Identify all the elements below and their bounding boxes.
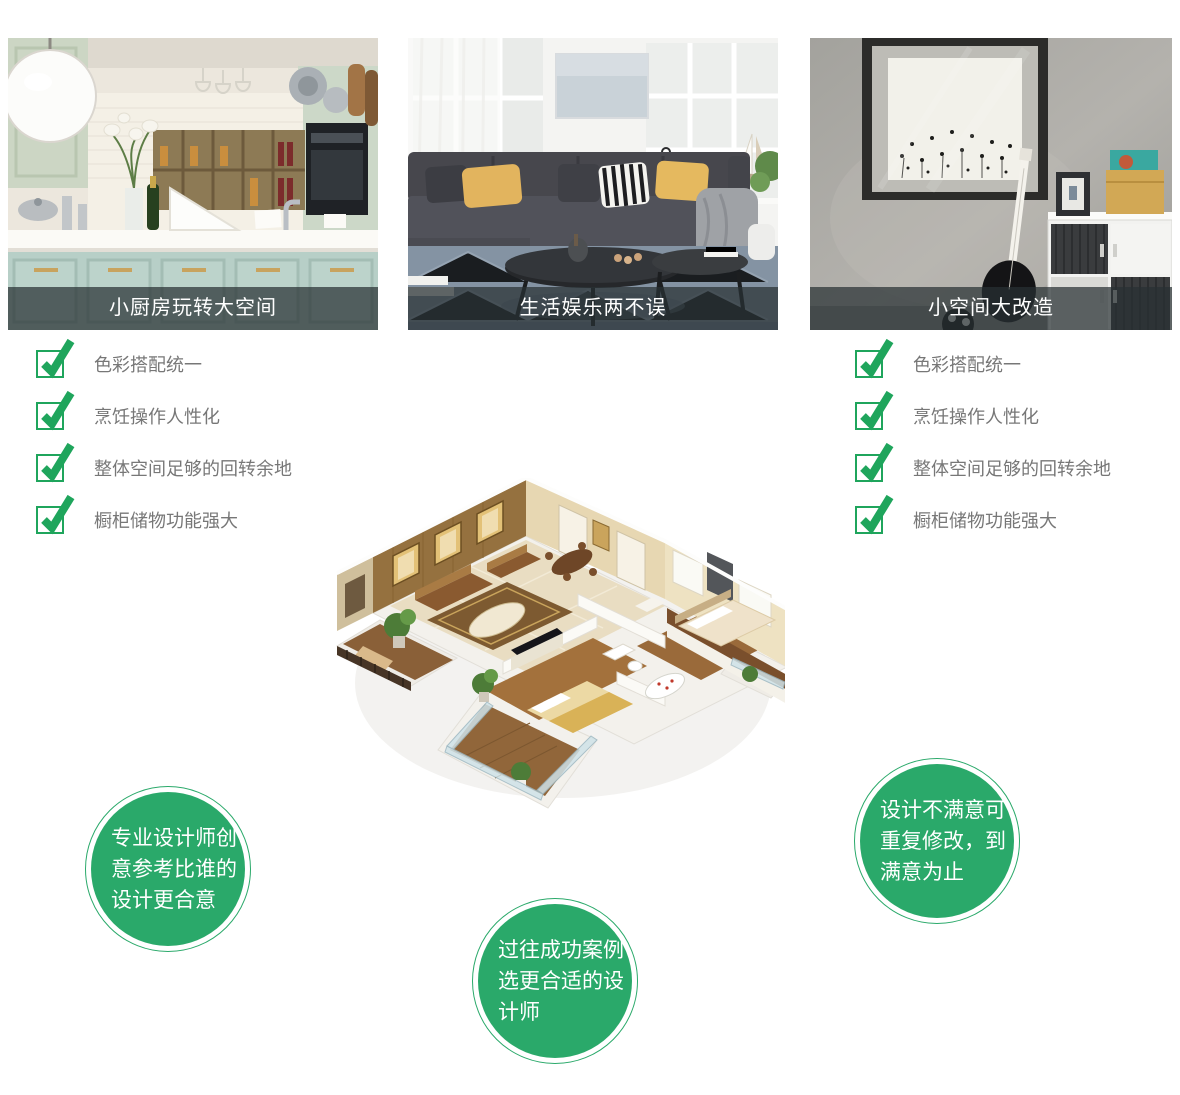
checklist-left: 色彩搭配统一 烹饪操作人性化 整体空间足够的回转余地 橱柜储物功能强大 [36, 350, 292, 534]
check-icon [855, 402, 883, 430]
badge-text: 专业设计师创 意参考比谁的 设计更合意 [91, 823, 237, 916]
badge-text: 设计不满意可 重复修改，到 满意为止 [860, 795, 1006, 888]
check-icon [36, 402, 64, 430]
check-icon [36, 454, 64, 482]
promo-page: 小厨房玩转大空间 [0, 0, 1180, 1095]
badge-designer-ideas: 专业设计师创 意参考比谁的 设计更合意 [85, 786, 251, 952]
card-caption: 生活娱乐两不误 [520, 287, 667, 330]
caption-bar: 小空间大改造 [810, 287, 1172, 330]
badge-revisions: 设计不满意可 重复修改，到 满意为止 [854, 758, 1020, 924]
checklist-label: 烹饪操作人性化 [913, 403, 1039, 429]
checklist-label: 橱柜储物功能强大 [913, 507, 1057, 533]
checklist-label: 色彩搭配统一 [913, 351, 1021, 377]
check-icon [36, 506, 64, 534]
caption-bar: 小厨房玩转大空间 [8, 287, 378, 330]
card-caption: 小厨房玩转大空间 [109, 287, 277, 330]
check-icon [855, 506, 883, 534]
checklist-label: 烹饪操作人性化 [94, 403, 220, 429]
caption-bar: 生活娱乐两不误 [408, 287, 778, 330]
badge-past-cases: 过往成功案例 选更合适的设 计师 [472, 898, 638, 1064]
checklist-item: 色彩搭配统一 [855, 350, 1111, 378]
checklist-item: 橱柜储物功能强大 [36, 506, 292, 534]
checklist-label: 整体空间足够的回转余地 [913, 455, 1111, 481]
checklist-label: 橱柜储物功能强大 [94, 507, 238, 533]
3d-apartment-floor-plan [335, 478, 785, 818]
checklist-right: 色彩搭配统一 烹饪操作人性化 整体空间足够的回转余地 橱柜储物功能强大 [855, 350, 1111, 534]
checklist-item: 色彩搭配统一 [36, 350, 292, 378]
floor-plan-image [335, 478, 785, 818]
badge-circle: 过往成功案例 选更合适的设 计师 [478, 904, 632, 1058]
checklist-item: 整体空间足够的回转余地 [855, 454, 1111, 482]
badge-circle: 专业设计师创 意参考比谁的 设计更合意 [91, 792, 245, 946]
checklist-label: 色彩搭配统一 [94, 351, 202, 377]
checklist-item: 烹饪操作人性化 [36, 402, 292, 430]
checklist-item: 烹饪操作人性化 [855, 402, 1111, 430]
check-icon [36, 350, 64, 378]
card-caption: 小空间大改造 [928, 287, 1054, 330]
checklist-item: 整体空间足够的回转余地 [36, 454, 292, 482]
badge-text: 过往成功案例 选更合适的设 计师 [478, 935, 624, 1028]
card-living-room: 生活娱乐两不误 [408, 38, 778, 330]
badge-circle: 设计不满意可 重复修改，到 满意为止 [860, 764, 1014, 918]
checklist-label: 整体空间足够的回转余地 [94, 455, 292, 481]
checklist-item: 橱柜储物功能强大 [855, 506, 1111, 534]
card-small-space: 小空间大改造 [810, 38, 1172, 330]
card-kitchen: 小厨房玩转大空间 [8, 38, 378, 330]
check-icon [855, 454, 883, 482]
check-icon [855, 350, 883, 378]
